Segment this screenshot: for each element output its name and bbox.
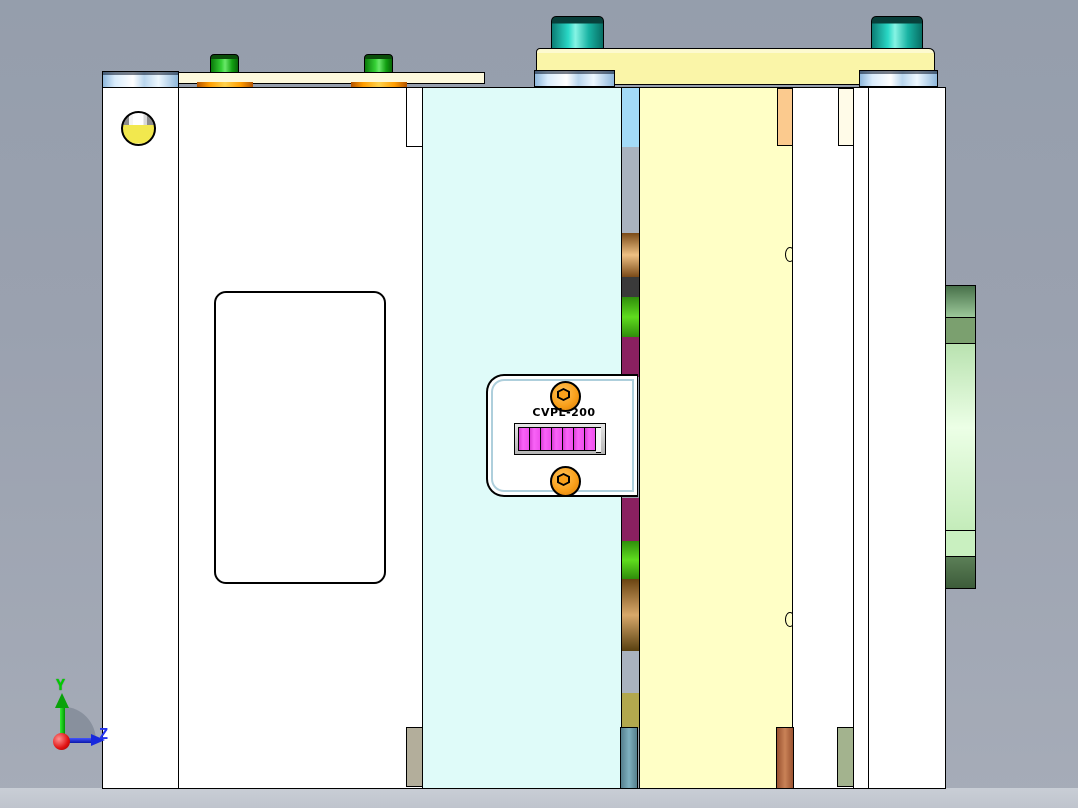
pillar-teal: [620, 727, 638, 789]
eyebolt[interactable]: [121, 111, 156, 146]
guide-insert-top-orange: [777, 88, 793, 146]
pillar-tan: [406, 727, 423, 787]
counter-digit-cell: [574, 428, 584, 450]
plate-pocket-outline[interactable]: [214, 291, 386, 584]
z-axis-label: Z: [99, 725, 108, 743]
guide-bushing-left[interactable]: [102, 71, 179, 88]
washer-right-2[interactable]: [859, 70, 938, 87]
counter-digit-cell: [585, 428, 595, 450]
y-axis-label: Y: [56, 676, 65, 694]
insert-dark-1: [622, 277, 639, 297]
plate-support-d[interactable]: [853, 87, 869, 789]
insert-magenta-1: [622, 337, 639, 377]
insert-sky-blue: [622, 88, 639, 148]
counter-digit-cells: [518, 427, 596, 451]
washer-right-1[interactable]: [534, 70, 615, 87]
counter-display-endcap: [596, 427, 601, 453]
plate-left-a[interactable]: [102, 87, 179, 789]
counter-model-label: CVPL-200: [514, 406, 614, 419]
ring-seg-3: [945, 343, 976, 531]
ring-seg-4: [945, 530, 976, 557]
viewport-floor: [0, 788, 1078, 808]
green-bolt-1[interactable]: [210, 54, 239, 73]
pillar-brown: [776, 727, 794, 789]
insert-magenta-2: [622, 498, 639, 541]
y-axis-arrow-icon: [55, 693, 69, 708]
ring-seg-5: [945, 556, 976, 589]
insert-gray-1: [622, 147, 639, 233]
axis-origin-sphere: [53, 733, 70, 750]
guide-insert-top-cream: [838, 88, 854, 146]
cad-viewport: CVPL-200 Y Z: [0, 0, 1078, 808]
locating-ring[interactable]: [945, 285, 976, 589]
insert-green-2: [622, 541, 639, 579]
counter-digit-cell: [563, 428, 573, 450]
ring-seg-2: [945, 317, 976, 344]
counter-display: [514, 423, 606, 455]
pillar-sage: [837, 727, 854, 787]
teal-bolt-1[interactable]: [551, 16, 604, 50]
ring-seg-1: [945, 285, 976, 318]
mold-counter[interactable]: CVPL-200: [486, 374, 638, 497]
teal-bolt-2[interactable]: [871, 16, 923, 50]
insert-gray-2: [622, 651, 639, 693]
counter-digit-cell: [530, 428, 540, 450]
counter-digit-cell: [541, 428, 551, 450]
counter-digit-cell: [552, 428, 562, 450]
insert-tan-1: [622, 233, 639, 277]
plate-clamp-e[interactable]: [868, 87, 946, 789]
insert-green-1: [622, 297, 639, 337]
insert-olive: [622, 693, 639, 728]
green-bolt-2[interactable]: [364, 54, 393, 73]
guide-insert-top-1: [406, 87, 423, 147]
plate-support-c[interactable]: [792, 87, 854, 789]
insert-tan-2: [622, 579, 639, 651]
counter-digit-cell: [519, 428, 529, 450]
plate-core-yellow[interactable]: [639, 87, 793, 789]
counter-bolt-bottom[interactable]: [550, 466, 581, 497]
